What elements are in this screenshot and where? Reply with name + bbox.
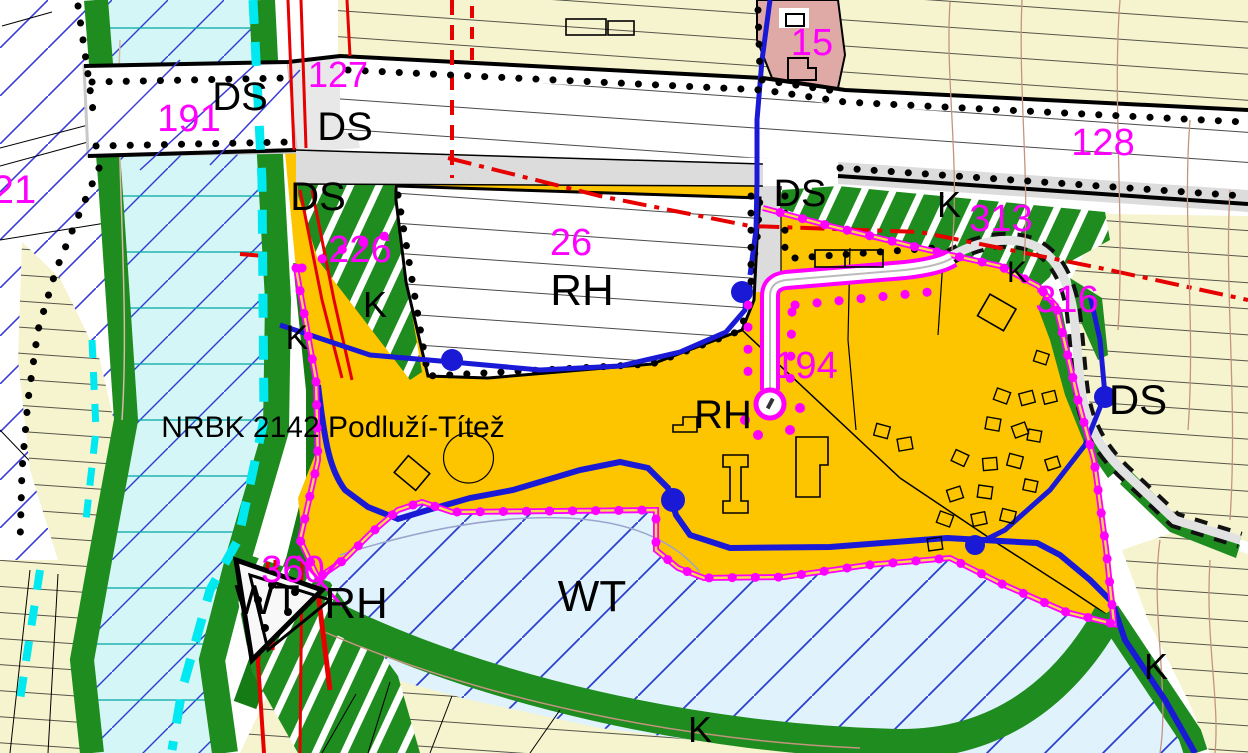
- zoning-map[interactable]: NRBK 2142 Podluží-TítežDSDSDSDSDSRHRHRHW…: [0, 0, 1248, 753]
- map-canvas[interactable]: [0, 0, 1248, 753]
